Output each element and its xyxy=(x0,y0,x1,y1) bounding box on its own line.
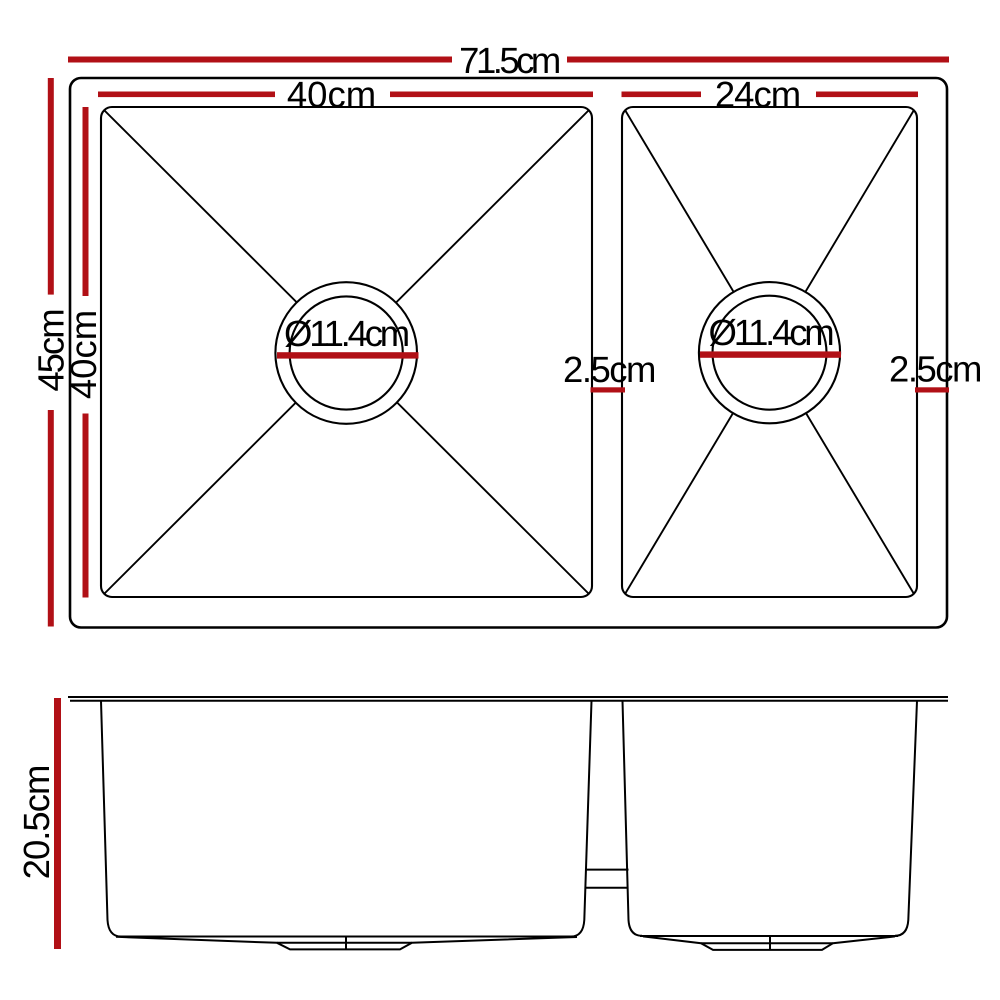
svg-text:40cm: 40cm xyxy=(287,74,376,115)
svg-text:24cm: 24cm xyxy=(715,74,800,115)
svg-text:71.5cm: 71.5cm xyxy=(459,40,559,81)
svg-text:20.5cm: 20.5cm xyxy=(16,766,57,880)
svg-text:Ø11.4cm: Ø11.4cm xyxy=(709,312,833,353)
svg-text:2.5cm: 2.5cm xyxy=(563,349,655,390)
svg-text:2.5cm: 2.5cm xyxy=(889,349,981,390)
svg-text:Ø11.4cm: Ø11.4cm xyxy=(284,313,408,354)
svg-text:40cm: 40cm xyxy=(63,310,104,399)
